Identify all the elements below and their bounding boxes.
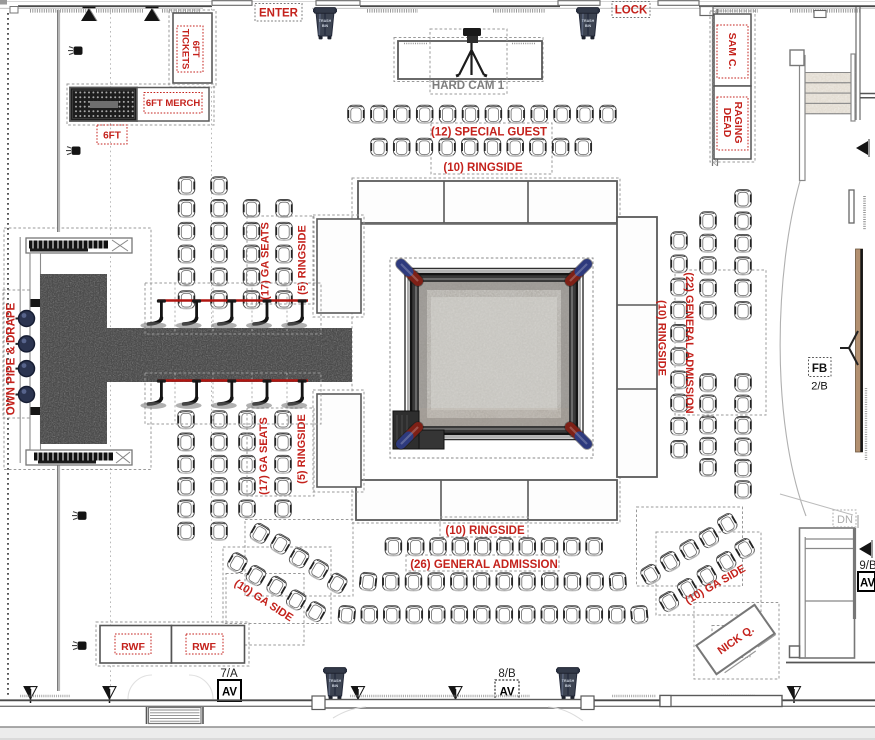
svg-text:(10) RINGSIDE: (10) RINGSIDE (656, 300, 668, 376)
svg-text:LOCK: LOCK (615, 5, 648, 17)
svg-text:HARD CAM 1: HARD CAM 1 (432, 80, 505, 92)
svg-text:6FT: 6FT (190, 41, 201, 58)
svg-text:9/B: 9/B (859, 560, 875, 572)
svg-text:(12) SPECIAL GUEST: (12) SPECIAL GUEST (431, 127, 547, 139)
svg-text:(5) RINGSIDE: (5) RINGSIDE (296, 414, 308, 484)
svg-text:(10) RINGSIDE: (10) RINGSIDE (443, 162, 523, 174)
svg-text:AV: AV (499, 687, 514, 699)
svg-text:AV: AV (860, 578, 875, 590)
svg-text:8/B: 8/B (498, 668, 516, 680)
svg-text:ENTER: ENTER (259, 8, 299, 20)
svg-text:(26) GENERAL ADMISSION: (26) GENERAL ADMISSION (410, 559, 558, 571)
svg-text:7/A: 7/A (220, 668, 238, 680)
svg-text:(17) GA SEATS: (17) GA SEATS (259, 222, 271, 300)
svg-text:RWF: RWF (121, 641, 145, 653)
svg-text:6FT MERCH: 6FT MERCH (146, 98, 201, 109)
svg-text:AV: AV (222, 687, 237, 699)
svg-text:2/B: 2/B (811, 381, 828, 393)
svg-text:6FT: 6FT (103, 131, 121, 142)
svg-text:FB: FB (812, 363, 827, 375)
svg-text:(10) RINGSIDE: (10) RINGSIDE (445, 525, 525, 537)
svg-text:SAM C.: SAM C. (726, 33, 738, 70)
svg-text:(5) RINGSIDE: (5) RINGSIDE (296, 225, 308, 295)
svg-text:RWF: RWF (192, 641, 216, 653)
svg-text:DN: DN (837, 514, 853, 526)
svg-text:DEAD: DEAD (721, 108, 733, 138)
svg-text:TICKETS: TICKETS (180, 29, 191, 70)
svg-text:(22) GENERAL ADMISSION: (22) GENERAL ADMISSION (683, 272, 695, 413)
svg-text:(17) GA SEATS: (17) GA SEATS (258, 417, 270, 495)
